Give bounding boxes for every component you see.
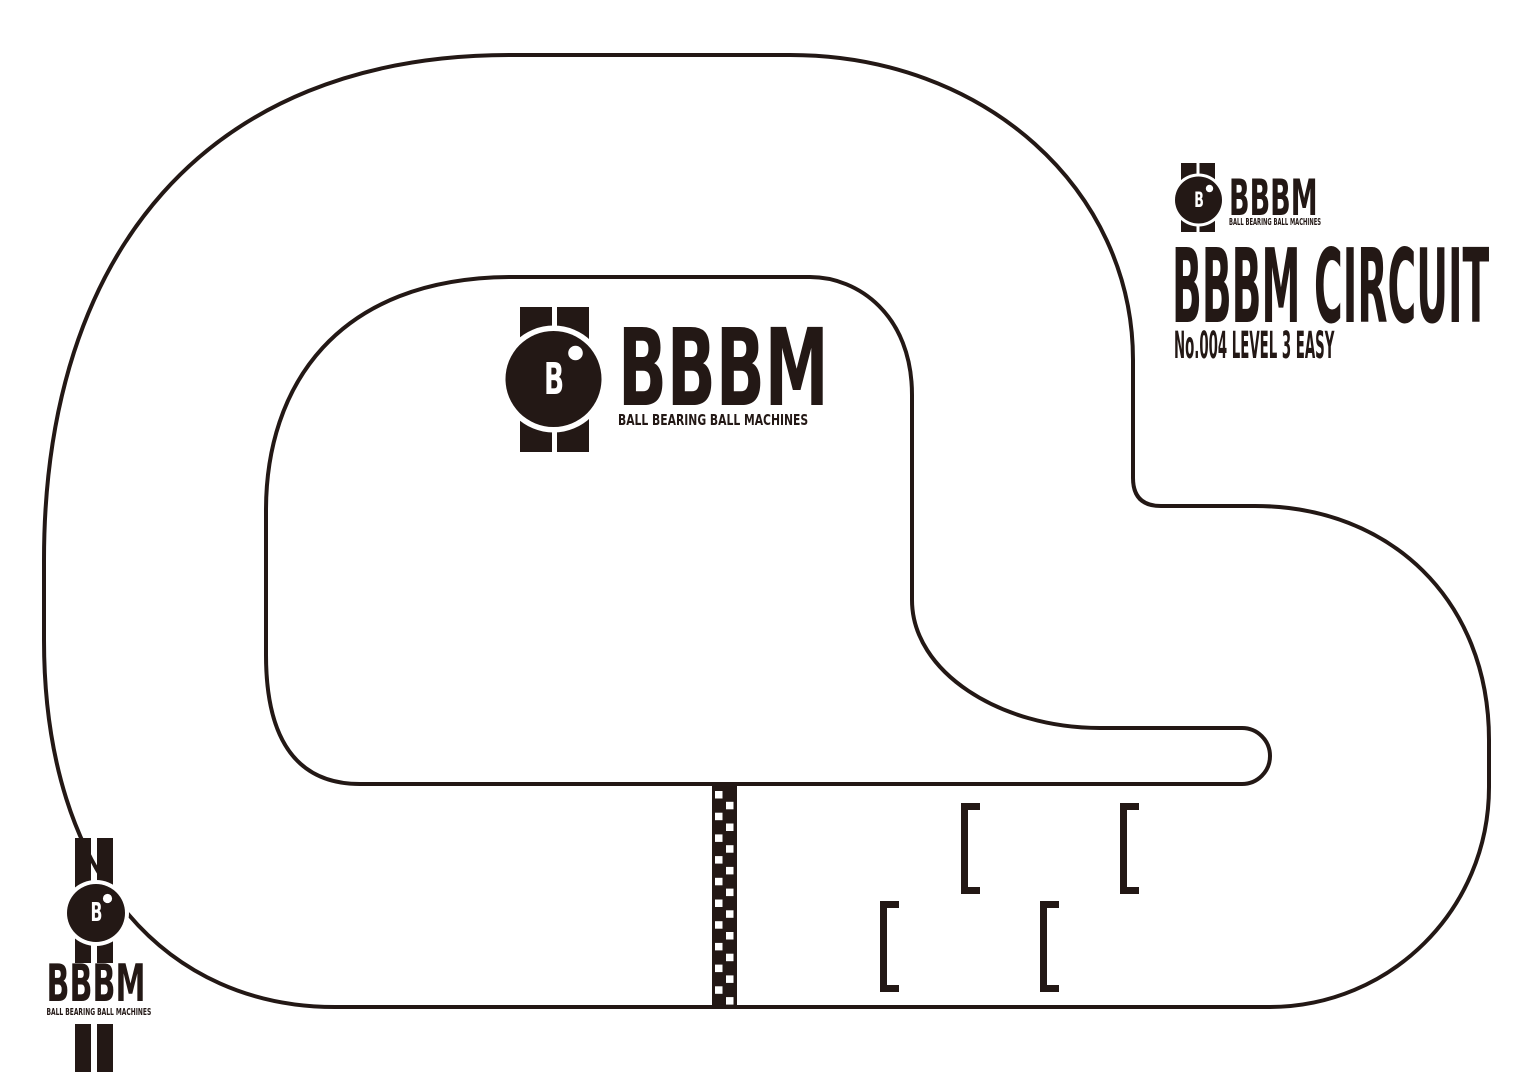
start-finish-square (715, 834, 723, 842)
tagline-text: BALL BEARING BALL MACHINES (1229, 216, 1321, 227)
ball-highlight-dot (1206, 185, 1213, 192)
circuit-subtitle: No.004 LEVEL 3 EASY (1174, 323, 1335, 367)
start-finish-square (715, 813, 723, 821)
header-logo: B BBBM BALL BEARING BALL MACHINES BBBM C… (1172, 163, 1489, 367)
start-finish-square (726, 889, 734, 897)
grid-marker (880, 901, 899, 992)
ball-highlight-dot (568, 346, 583, 361)
start-finish-square (715, 791, 723, 799)
start-finish-square (726, 975, 734, 983)
tagline-text: BALL BEARING BALL MACHINES (618, 412, 808, 429)
grid-markers (880, 803, 1139, 992)
footer-logo: B BBBM BALL BEARING BALL MACHINES (47, 838, 152, 1072)
tagline-text: BALL BEARING BALL MACHINES (47, 1007, 152, 1018)
start-finish-square (726, 824, 734, 832)
start-finish-square (726, 954, 734, 962)
ball-letter: B (544, 353, 564, 405)
circuit-sheet: B BBBM BALL BEARING BALL MACHINES B BBBM… (0, 0, 1536, 1086)
grid-marker (1040, 901, 1059, 992)
start-finish-square (726, 867, 734, 875)
start-finish-square (726, 910, 734, 918)
start-finish-square (726, 802, 734, 810)
start-finish-square (726, 845, 734, 853)
start-finish-square (715, 878, 723, 886)
start-finish-square (715, 921, 723, 929)
center-logo: B BBBM BALL BEARING BALL MACHINES (500, 306, 829, 452)
start-finish-square (715, 986, 723, 994)
start-finish-square (715, 900, 723, 908)
start-finish-square (715, 856, 723, 864)
start-finish-square (715, 965, 723, 973)
grid-marker (961, 803, 980, 894)
ball-highlight-dot (103, 894, 112, 903)
circuit-drawing: B BBBM BALL BEARING BALL MACHINES B BBBM… (0, 0, 1536, 1086)
logo-bar-left-bottom (75, 1024, 91, 1072)
ball-letter: B (1194, 189, 1204, 213)
start-finish-line (712, 786, 737, 1006)
grid-marker (1120, 803, 1139, 894)
ball-letter: B (91, 898, 103, 928)
start-finish-square (715, 943, 723, 951)
start-finish-square (726, 932, 734, 940)
logo-bar-right-bottom (97, 1024, 113, 1072)
brand-text: BBBM (47, 955, 146, 1015)
start-finish-square (726, 997, 734, 1005)
